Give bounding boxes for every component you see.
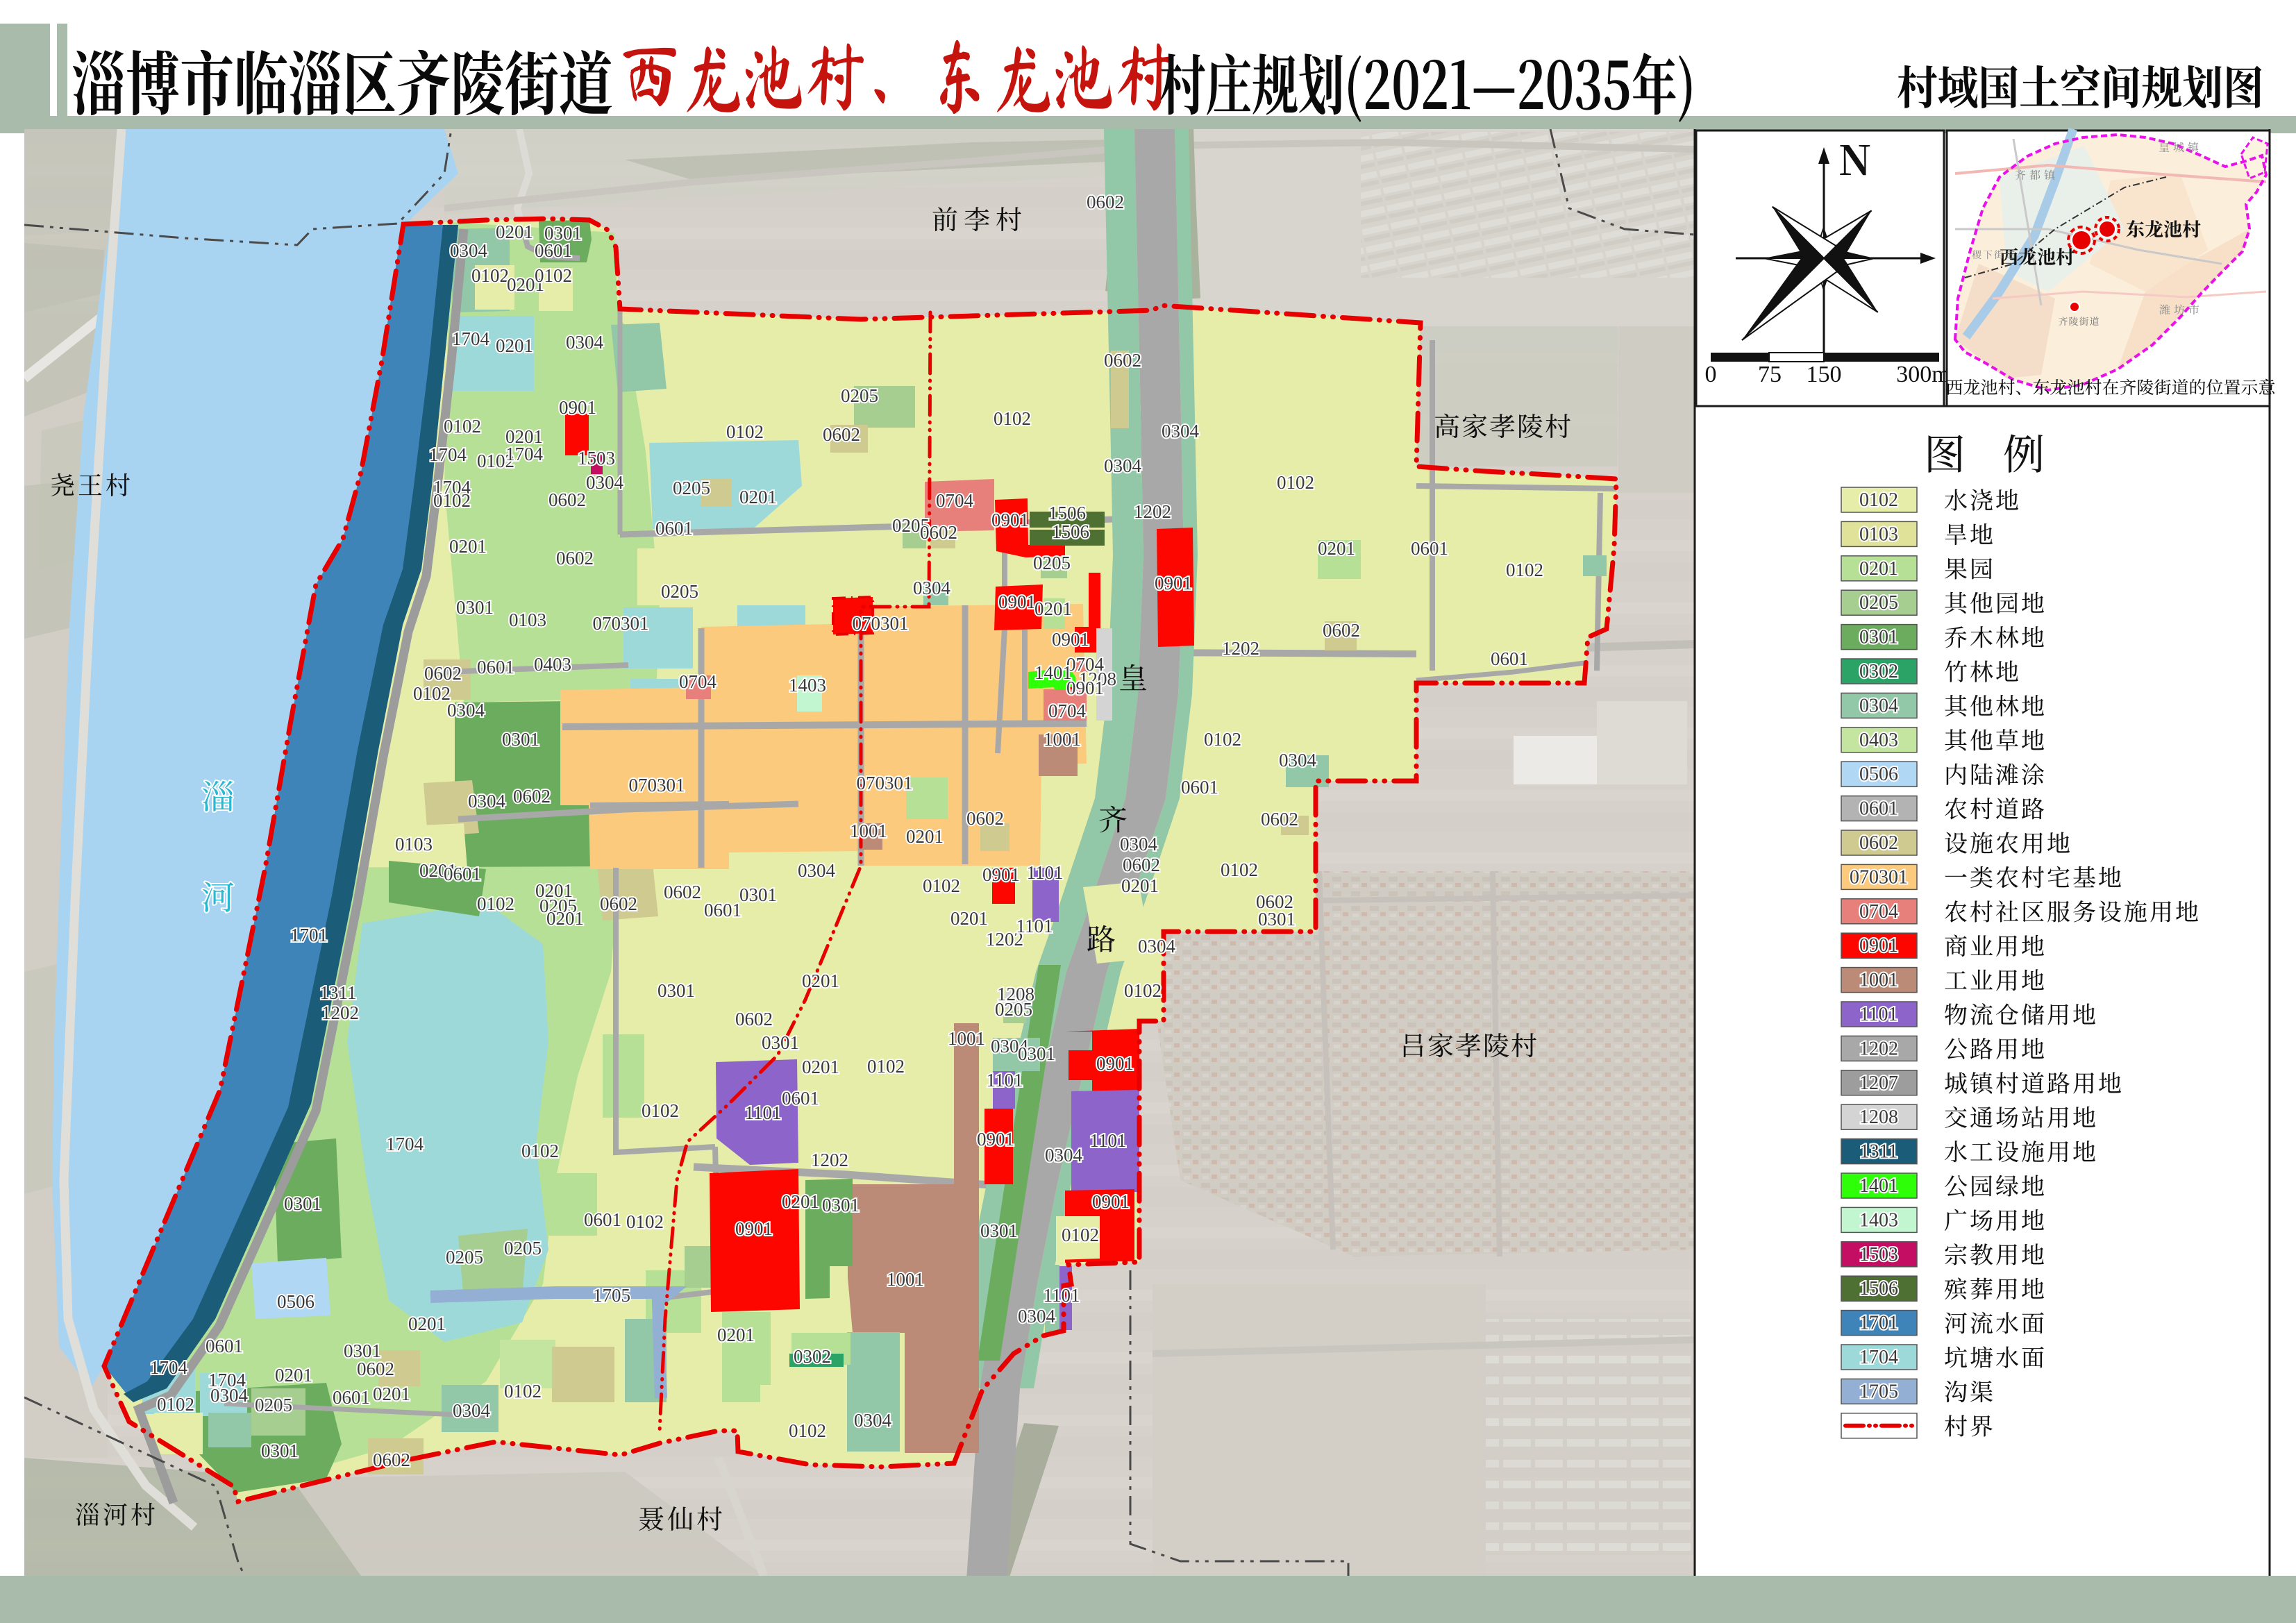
svg-text:0102: 0102	[504, 1381, 542, 1402]
svg-text:0302: 0302	[794, 1346, 831, 1367]
svg-text:0304: 0304	[1279, 750, 1317, 771]
svg-text:0602: 0602	[1323, 620, 1360, 641]
svg-text:0103: 0103	[395, 834, 433, 855]
svg-text:1101: 1101	[745, 1102, 782, 1123]
svg-text:0602: 0602	[556, 548, 594, 569]
svg-text:0901: 0901	[977, 1129, 1014, 1150]
svg-text:0102: 0102	[923, 875, 960, 896]
svg-text:0201: 0201	[546, 908, 584, 929]
svg-text:0602: 0602	[664, 882, 701, 902]
svg-text:0301: 0301	[657, 980, 695, 1001]
svg-text:070301: 070301	[629, 775, 685, 796]
svg-text:0602: 0602	[1261, 809, 1298, 830]
svg-text:0301: 0301	[261, 1440, 299, 1461]
svg-text:0102: 0102	[1062, 1225, 1099, 1245]
svg-text:0901: 0901	[1052, 629, 1089, 650]
svg-text:0602: 0602	[373, 1449, 410, 1470]
svg-text:0304: 0304	[210, 1385, 249, 1406]
svg-text:1202: 1202	[1222, 638, 1259, 659]
svg-text:0602: 0602	[966, 808, 1004, 829]
svg-text:0403: 0403	[534, 654, 571, 675]
svg-text:0601: 0601	[333, 1387, 370, 1408]
svg-text:1001: 1001	[887, 1269, 924, 1290]
svg-text:1403: 1403	[1859, 1209, 1898, 1231]
svg-text:0704: 0704	[679, 671, 717, 692]
svg-text:0602: 0602	[920, 522, 957, 543]
svg-text:0601: 0601	[1181, 777, 1218, 798]
svg-text:0102: 0102	[433, 490, 471, 511]
svg-text:1101: 1101	[1090, 1130, 1127, 1151]
svg-text:1704: 1704	[452, 328, 490, 349]
svg-text:1503: 1503	[1859, 1244, 1898, 1265]
svg-text:0301: 0301	[502, 729, 539, 750]
svg-text:0602: 0602	[1104, 350, 1141, 371]
svg-text:1506: 1506	[1859, 1278, 1898, 1300]
svg-text:0205: 0205	[661, 581, 698, 602]
svg-text:150: 150	[1807, 362, 1842, 387]
svg-text:0602: 0602	[735, 1009, 773, 1029]
svg-text:0901: 0901	[735, 1218, 773, 1239]
svg-text:1202: 1202	[321, 1002, 359, 1023]
svg-text:0201: 0201	[950, 908, 988, 929]
svg-text:0601: 0601	[477, 657, 514, 678]
svg-text:0304: 0304	[450, 240, 488, 261]
svg-text:070301: 070301	[1850, 866, 1908, 888]
svg-text:0304: 0304	[586, 472, 624, 493]
svg-text:0205: 0205	[255, 1395, 292, 1415]
svg-text:0901: 0901	[1096, 1053, 1134, 1074]
svg-text:0301: 0301	[1258, 909, 1296, 930]
svg-text:0205: 0205	[446, 1247, 483, 1268]
svg-text:070301: 070301	[593, 613, 649, 634]
svg-text:0103: 0103	[509, 609, 546, 630]
svg-text:1101: 1101	[1860, 1004, 1898, 1025]
svg-text:0304: 0304	[1859, 695, 1898, 716]
svg-text:1506: 1506	[1048, 503, 1086, 523]
svg-text:0601: 0601	[584, 1209, 621, 1230]
svg-text:070301: 070301	[857, 773, 913, 793]
svg-text:0102: 0102	[157, 1394, 194, 1415]
svg-text:75: 75	[1758, 362, 1782, 387]
svg-text:1001: 1001	[948, 1028, 985, 1049]
svg-text:0601: 0601	[1411, 538, 1448, 559]
svg-text:0901: 0901	[1092, 1191, 1130, 1212]
svg-text:0304: 0304	[447, 700, 485, 721]
svg-text:0304: 0304	[1104, 455, 1142, 476]
svg-text:1001: 1001	[1859, 970, 1898, 991]
svg-text:0304: 0304	[1162, 421, 1200, 442]
svg-text:300m: 300m	[1896, 362, 1950, 387]
svg-text:1207: 1207	[1859, 1073, 1898, 1094]
svg-text:0304: 0304	[1018, 1306, 1056, 1327]
svg-text:0301: 0301	[1859, 627, 1898, 648]
svg-text:1202: 1202	[1859, 1038, 1898, 1059]
svg-text:0102: 0102	[477, 893, 514, 914]
svg-text:0304: 0304	[566, 332, 604, 353]
svg-text:0602: 0602	[823, 424, 860, 445]
svg-text:1311: 1311	[1860, 1141, 1898, 1163]
svg-text:0102: 0102	[994, 408, 1031, 429]
svg-text:0301: 0301	[1018, 1043, 1055, 1064]
svg-text:0602: 0602	[357, 1359, 394, 1379]
svg-text:1101: 1101	[1044, 1285, 1080, 1306]
svg-text:0201: 0201	[1034, 598, 1072, 619]
svg-text:0205: 0205	[1859, 592, 1898, 614]
svg-text:1704: 1704	[386, 1134, 424, 1154]
svg-text:070301: 070301	[853, 613, 909, 634]
svg-text:0901: 0901	[559, 397, 596, 418]
svg-text:0205: 0205	[504, 1238, 542, 1259]
svg-text:0201: 0201	[496, 335, 533, 356]
svg-text:1704: 1704	[505, 444, 544, 464]
svg-text:0201: 0201	[1121, 875, 1159, 896]
svg-text:0201: 0201	[496, 221, 533, 242]
svg-text:1503: 1503	[578, 448, 615, 469]
svg-text:0301: 0301	[739, 884, 777, 905]
svg-text:0304: 0304	[913, 578, 951, 598]
svg-text:0304: 0304	[854, 1410, 892, 1431]
svg-text:0901: 0901	[1066, 678, 1104, 698]
svg-text:0201: 0201	[373, 1384, 410, 1404]
svg-text:0102: 0102	[726, 421, 764, 442]
svg-text:0201: 0201	[739, 487, 777, 507]
svg-text:0301: 0301	[284, 1193, 321, 1214]
svg-text:0201: 0201	[717, 1325, 755, 1345]
svg-text:1701: 1701	[290, 925, 328, 945]
svg-text:0301: 0301	[980, 1220, 1018, 1241]
svg-text:0205: 0205	[673, 478, 710, 498]
svg-text:1704: 1704	[429, 444, 467, 465]
svg-text:0102: 0102	[521, 1141, 559, 1161]
svg-text:0201: 0201	[782, 1191, 819, 1212]
svg-text:1202: 1202	[811, 1150, 848, 1170]
svg-text:0601: 0601	[704, 900, 741, 920]
svg-text:1403: 1403	[789, 675, 826, 696]
svg-text:0102: 0102	[1221, 859, 1258, 880]
svg-text:1208: 1208	[1859, 1107, 1898, 1128]
svg-text:1705: 1705	[1859, 1381, 1898, 1402]
svg-text:1101: 1101	[1016, 916, 1053, 936]
svg-text:0601: 0601	[535, 240, 572, 261]
svg-text:0301: 0301	[762, 1032, 799, 1053]
svg-text:0301: 0301	[822, 1195, 860, 1216]
svg-text:0901: 0901	[1155, 573, 1192, 594]
svg-text:0602: 0602	[513, 786, 551, 807]
svg-text:0304: 0304	[453, 1400, 491, 1421]
svg-text:0201: 0201	[408, 1313, 446, 1334]
svg-text:0205: 0205	[841, 385, 878, 406]
svg-text:0403: 0403	[1859, 730, 1898, 751]
svg-text:1705: 1705	[593, 1285, 630, 1306]
svg-text:0304: 0304	[1120, 834, 1158, 855]
svg-text:1311: 1311	[320, 982, 357, 1003]
svg-text:1202: 1202	[1134, 501, 1171, 522]
svg-text:1704: 1704	[150, 1357, 188, 1378]
svg-text:0602: 0602	[600, 893, 637, 914]
svg-text:0102: 0102	[1124, 980, 1162, 1001]
svg-text:0301: 0301	[456, 597, 494, 618]
svg-text:0602: 0602	[424, 663, 462, 684]
svg-text:0302: 0302	[1859, 661, 1898, 682]
svg-text:0506: 0506	[277, 1291, 315, 1312]
svg-text:0602: 0602	[1123, 855, 1160, 875]
svg-text:1701: 1701	[1859, 1313, 1898, 1334]
svg-text:0304: 0304	[1045, 1145, 1083, 1166]
svg-text:0601: 0601	[655, 518, 693, 539]
svg-text:1401: 1401	[1859, 1175, 1898, 1197]
svg-text:0901: 0901	[1859, 935, 1898, 957]
svg-text:0201: 0201	[802, 970, 839, 991]
svg-text:0304: 0304	[468, 791, 506, 811]
svg-text:0: 0	[1705, 362, 1717, 387]
svg-text:0601: 0601	[1491, 648, 1528, 669]
svg-text:0304: 0304	[1138, 936, 1176, 957]
svg-text:0304: 0304	[798, 860, 836, 881]
svg-text:1001: 1001	[850, 821, 887, 841]
svg-text:0601: 0601	[1859, 798, 1898, 820]
svg-text:0102: 0102	[626, 1211, 664, 1232]
svg-text:0201: 0201	[1318, 538, 1355, 559]
svg-text:0704: 0704	[1048, 700, 1087, 721]
svg-text:1001: 1001	[1044, 729, 1081, 750]
svg-text:0205: 0205	[995, 999, 1032, 1020]
svg-text:0201: 0201	[802, 1057, 839, 1077]
svg-text:0901: 0901	[982, 864, 1020, 885]
svg-text:0102: 0102	[1506, 560, 1543, 580]
svg-text:0102: 0102	[535, 265, 572, 286]
svg-text:0102: 0102	[444, 416, 481, 437]
svg-text:0201: 0201	[275, 1365, 312, 1386]
svg-text:1704: 1704	[1859, 1347, 1898, 1368]
svg-text:0704: 0704	[1859, 901, 1898, 923]
svg-text:0102: 0102	[1277, 472, 1314, 493]
svg-text:0102: 0102	[471, 265, 509, 286]
svg-text:0901: 0901	[998, 591, 1036, 612]
svg-text:1101: 1101	[1027, 862, 1064, 883]
svg-text:0601: 0601	[782, 1088, 819, 1109]
svg-text:0601: 0601	[444, 864, 481, 884]
svg-text:0102: 0102	[413, 683, 451, 704]
svg-text:0201: 0201	[449, 536, 487, 557]
svg-text:0201: 0201	[1859, 558, 1898, 580]
svg-text:0602: 0602	[548, 489, 586, 510]
svg-text:0102: 0102	[789, 1420, 826, 1441]
svg-text:1506: 1506	[1052, 521, 1089, 542]
svg-text:0102: 0102	[642, 1100, 679, 1121]
svg-text:0602: 0602	[1087, 192, 1124, 212]
svg-text:0901: 0901	[991, 510, 1029, 530]
svg-text:0506: 0506	[1859, 764, 1898, 785]
svg-text:0103: 0103	[1859, 523, 1898, 545]
svg-text:0602: 0602	[1859, 832, 1898, 854]
svg-text:0201: 0201	[906, 826, 944, 847]
svg-text:1101: 1101	[987, 1070, 1023, 1091]
svg-text:0601: 0601	[206, 1336, 243, 1356]
svg-text:0205: 0205	[1033, 553, 1071, 573]
svg-text:0102: 0102	[1204, 729, 1241, 750]
svg-text:0704: 0704	[936, 490, 974, 511]
svg-text:0102: 0102	[1859, 489, 1898, 511]
svg-text:0102: 0102	[867, 1056, 905, 1077]
